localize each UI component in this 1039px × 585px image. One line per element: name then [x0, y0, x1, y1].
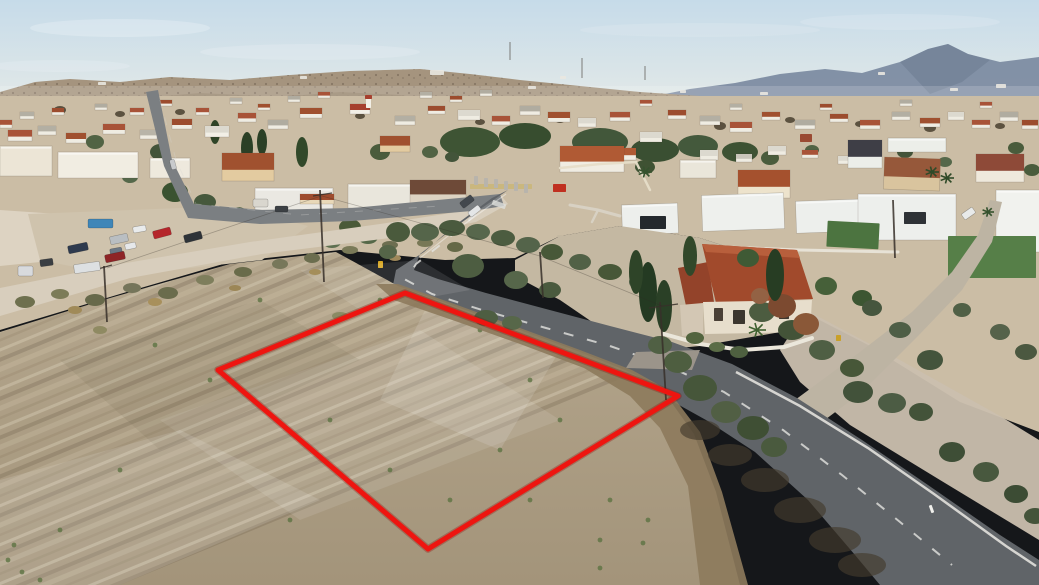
olive-tree [878, 393, 906, 413]
structure-detail [524, 184, 528, 193]
palm-crown [946, 177, 949, 180]
house-roof [238, 113, 256, 118]
village-tree [995, 123, 1005, 129]
scrub-bush [447, 242, 463, 252]
house-parapet [59, 153, 137, 155]
house [95, 104, 107, 110]
conifer-tree [683, 236, 697, 276]
olive-tree [843, 381, 873, 403]
house-roof [458, 110, 480, 116]
olive-tree [466, 224, 490, 240]
house-roof [578, 118, 596, 123]
olive-tree [939, 442, 965, 462]
house [860, 120, 880, 129]
parked-car [40, 258, 54, 267]
house [238, 113, 256, 122]
house [700, 150, 718, 160]
house [700, 116, 720, 125]
structure-detail [800, 134, 812, 142]
house [52, 108, 64, 115]
aerial-photo-scene [0, 0, 1039, 585]
village-tree [785, 117, 795, 123]
structure-detail [514, 182, 518, 191]
house-walls [0, 146, 52, 176]
scrub-bush [196, 275, 214, 285]
house [8, 130, 32, 141]
house-roof [700, 116, 720, 121]
house-roof [736, 154, 752, 159]
weed-tuft [598, 566, 603, 571]
olive-tree [648, 336, 672, 354]
weed-tuft [598, 538, 603, 543]
aerial-photo [0, 0, 1039, 585]
weed-tuft [558, 418, 563, 423]
house [395, 116, 415, 125]
house-roof [640, 132, 662, 138]
weed-tuft [38, 578, 43, 583]
olive-tree [751, 288, 769, 304]
house [701, 193, 784, 232]
house [66, 133, 86, 143]
house-parapet [997, 191, 1039, 193]
house-roof [730, 122, 752, 128]
palm-crown [644, 171, 647, 174]
olive-tree [569, 254, 591, 270]
village-tree [86, 135, 104, 149]
conifer-tree [629, 250, 643, 294]
distant-building [760, 92, 768, 95]
distant-building [878, 72, 885, 75]
weed-tuft [328, 418, 333, 423]
olive-tree [439, 220, 465, 236]
olive-tree [411, 223, 439, 241]
house [980, 102, 992, 108]
house-roof [428, 106, 445, 111]
house [820, 104, 832, 110]
house-roof [480, 90, 492, 94]
olive-tree [793, 313, 819, 335]
distant-building [300, 76, 307, 79]
olive-tree [840, 359, 864, 377]
distant-building [950, 88, 958, 91]
olive-tree [809, 340, 835, 360]
weed-tuft [12, 543, 17, 548]
house-roof [0, 120, 12, 125]
burnt-brush [809, 527, 861, 553]
house-roof [900, 100, 912, 104]
house-roof [103, 124, 125, 130]
house [480, 90, 492, 96]
palm-crown [756, 329, 759, 332]
house-roof [172, 119, 192, 125]
house [0, 120, 12, 128]
car-body [275, 206, 288, 212]
house-roof [140, 130, 157, 135]
house [196, 108, 209, 115]
weed-tuft [646, 518, 651, 523]
house [802, 150, 818, 158]
olive-tree [379, 245, 397, 259]
house [428, 106, 445, 114]
house [578, 118, 596, 127]
house-parapet [681, 161, 715, 163]
house-roof [920, 118, 940, 123]
house-roof [668, 110, 686, 115]
house-roof [268, 120, 288, 125]
olive-tree [598, 264, 622, 280]
distant-building [560, 76, 566, 79]
house-roof [560, 146, 624, 162]
palm-crown [987, 211, 990, 214]
olive-tree [504, 271, 528, 289]
house [288, 96, 300, 102]
house-roof [492, 116, 510, 121]
house [1000, 112, 1018, 121]
house [130, 108, 144, 115]
house-roof [222, 153, 274, 170]
house [640, 132, 662, 142]
house-roof [258, 104, 270, 108]
house-roof [1000, 112, 1018, 117]
scrub-bush [93, 326, 107, 334]
house [948, 112, 964, 120]
house-roof [1022, 120, 1038, 125]
house [420, 92, 432, 98]
structure-detail [365, 95, 372, 99]
roadside-detail [836, 335, 841, 341]
cloud [30, 19, 210, 37]
house-roof [8, 130, 32, 137]
house [172, 119, 192, 129]
olive-tree [815, 277, 837, 295]
house-parapet [349, 185, 417, 187]
olive-tree [973, 462, 999, 482]
structure-detail [504, 181, 508, 190]
structure-detail [470, 184, 532, 189]
village-tree [257, 129, 267, 155]
structure-detail [826, 221, 879, 250]
scene-layers [0, 0, 1039, 585]
structure-detail [494, 179, 498, 188]
house-roof [52, 108, 64, 112]
parked-car [253, 199, 268, 207]
house [380, 136, 410, 152]
house-roof [288, 96, 300, 100]
village-tree [296, 137, 308, 167]
house [258, 104, 270, 110]
structure-detail [640, 216, 666, 229]
scrub-bush [234, 267, 252, 277]
olive-tree [452, 254, 484, 278]
house-roof [300, 108, 322, 114]
house [795, 120, 815, 129]
cloud [580, 23, 820, 37]
scrub-bush [15, 296, 35, 308]
house-parapet [889, 139, 945, 141]
olive-tree [917, 350, 943, 370]
house-roof [450, 96, 462, 100]
house-roof [768, 146, 786, 151]
house-roof [318, 92, 330, 96]
olive-tree [761, 437, 787, 457]
distant-building [430, 70, 444, 75]
distant-building [996, 84, 1006, 88]
house [768, 146, 786, 155]
house [1022, 120, 1038, 129]
scrub-bush [342, 246, 358, 254]
olive-tree [990, 324, 1010, 340]
house-roof [380, 136, 410, 146]
house [38, 126, 56, 135]
olive-tree [889, 322, 911, 338]
house [58, 152, 138, 178]
house [300, 108, 322, 118]
house-roof [762, 112, 780, 117]
house-roof [196, 108, 209, 112]
structure-detail [553, 184, 566, 192]
house [268, 120, 288, 129]
house-walls [58, 152, 138, 178]
village-tree [445, 152, 459, 162]
structure-detail [904, 212, 926, 224]
house-roof [38, 126, 56, 131]
weed-tuft [118, 468, 123, 473]
scrub-bush [272, 259, 288, 269]
house-roof [640, 100, 652, 104]
scrub-bush [148, 298, 162, 306]
structure-detail [366, 98, 371, 108]
weed-tuft [528, 378, 533, 383]
villa-window [714, 308, 723, 321]
village-tree [499, 123, 551, 149]
house [920, 118, 940, 127]
car-body [18, 266, 33, 276]
house-roof [20, 112, 34, 116]
burnt-brush [838, 553, 886, 577]
house-roof [700, 150, 718, 156]
olive-tree [1015, 344, 1037, 360]
house-roof [830, 114, 848, 119]
house [492, 116, 510, 125]
weed-tuft [448, 498, 453, 503]
house-walls [701, 193, 784, 232]
burnt-brush [741, 468, 789, 492]
distant-building [528, 86, 536, 89]
house-roof [610, 112, 630, 117]
house [458, 110, 480, 120]
scrub-bush [229, 285, 241, 291]
house [736, 154, 752, 162]
distant-building [680, 90, 686, 93]
house-roof [395, 116, 415, 121]
house-roof [860, 120, 880, 125]
weed-tuft [528, 498, 533, 503]
house-roof [795, 120, 815, 125]
house [668, 110, 686, 119]
weed-tuft [6, 558, 11, 563]
weed-tuft [58, 528, 63, 533]
weed-tuft [388, 468, 393, 473]
house-roof [802, 150, 818, 155]
burnt-brush [708, 444, 752, 466]
house [20, 112, 34, 119]
house [730, 104, 742, 110]
house [762, 112, 780, 120]
villa-shape [680, 303, 703, 336]
parked-car [18, 266, 33, 276]
house [900, 100, 912, 106]
olive-tree [1004, 485, 1028, 503]
scrub-bush [158, 287, 178, 299]
cloud [800, 14, 1000, 30]
house [103, 124, 125, 134]
car-body [40, 258, 54, 267]
parked-car [88, 219, 113, 228]
olive-tree [709, 342, 725, 352]
house-roof [520, 106, 540, 111]
olive-tree [686, 332, 704, 344]
house-roof [230, 98, 242, 102]
house [976, 154, 1024, 182]
house [730, 122, 752, 132]
weed-tuft [641, 541, 646, 546]
house [548, 112, 570, 122]
house [640, 100, 652, 106]
house-roof [66, 133, 86, 139]
burnt-brush [774, 497, 826, 523]
house [230, 98, 242, 104]
scrub-bush [85, 294, 105, 306]
house-parapet [1, 147, 51, 149]
scrub-bush [309, 269, 321, 275]
village-tree [115, 111, 125, 117]
house [0, 146, 52, 176]
parked-car [275, 206, 288, 212]
house-walls [680, 160, 716, 178]
house-roof [892, 112, 910, 117]
car-body [88, 219, 113, 228]
weed-tuft [153, 343, 158, 348]
olive-tree [386, 222, 410, 242]
olive-tree [730, 346, 748, 358]
house [450, 96, 462, 102]
house [680, 160, 716, 178]
car-body [253, 199, 268, 207]
olive-tree [737, 416, 769, 440]
house [222, 153, 274, 181]
house-roof [948, 112, 964, 117]
olive-tree [711, 401, 741, 423]
villa-window [733, 310, 745, 324]
olive-tree [664, 351, 692, 373]
house-roof [730, 104, 742, 108]
house-parapet [859, 195, 955, 197]
village-tree [422, 146, 438, 158]
house-roof [976, 154, 1024, 171]
house [848, 140, 882, 168]
olive-tree [737, 249, 759, 267]
olive-tree [862, 300, 882, 316]
house-roof [972, 120, 990, 125]
house-roof [884, 157, 941, 178]
village-tree [1008, 142, 1024, 154]
house [318, 92, 330, 98]
house-roof [420, 92, 432, 96]
weed-tuft [498, 448, 503, 453]
olive-tree [683, 375, 717, 401]
structure-detail [484, 178, 488, 187]
weed-tuft [288, 518, 293, 523]
house-roof [130, 108, 144, 112]
house [205, 126, 229, 137]
house-roof [410, 180, 466, 194]
weed-tuft [20, 570, 25, 575]
distant-building [98, 82, 106, 85]
house [520, 106, 540, 115]
house-roof [980, 102, 992, 106]
palm-crown [931, 171, 934, 174]
olive-tree [953, 303, 971, 317]
house-roof [548, 112, 570, 118]
weed-tuft [208, 378, 213, 383]
house-roof [738, 170, 790, 187]
house-roof [205, 126, 229, 133]
house [972, 120, 990, 128]
olive-tree [909, 403, 933, 421]
house-roof [820, 104, 832, 108]
cloud [200, 44, 420, 60]
conifer-tree [766, 249, 784, 301]
weed-tuft [258, 298, 263, 303]
scrub-bush [304, 253, 320, 263]
house [610, 112, 630, 121]
scrub-bush [123, 283, 141, 293]
house [140, 130, 157, 139]
house-roof [848, 140, 882, 157]
house [830, 114, 848, 122]
structure-detail [474, 176, 478, 185]
weed-tuft [608, 498, 613, 503]
house [892, 112, 910, 120]
scrub-bush [51, 289, 69, 299]
burnt-brush [680, 420, 720, 440]
house-roof [95, 104, 107, 108]
house-roof [160, 100, 172, 104]
house [888, 138, 946, 152]
scrub-bush [68, 306, 82, 314]
village-tree [175, 109, 185, 115]
